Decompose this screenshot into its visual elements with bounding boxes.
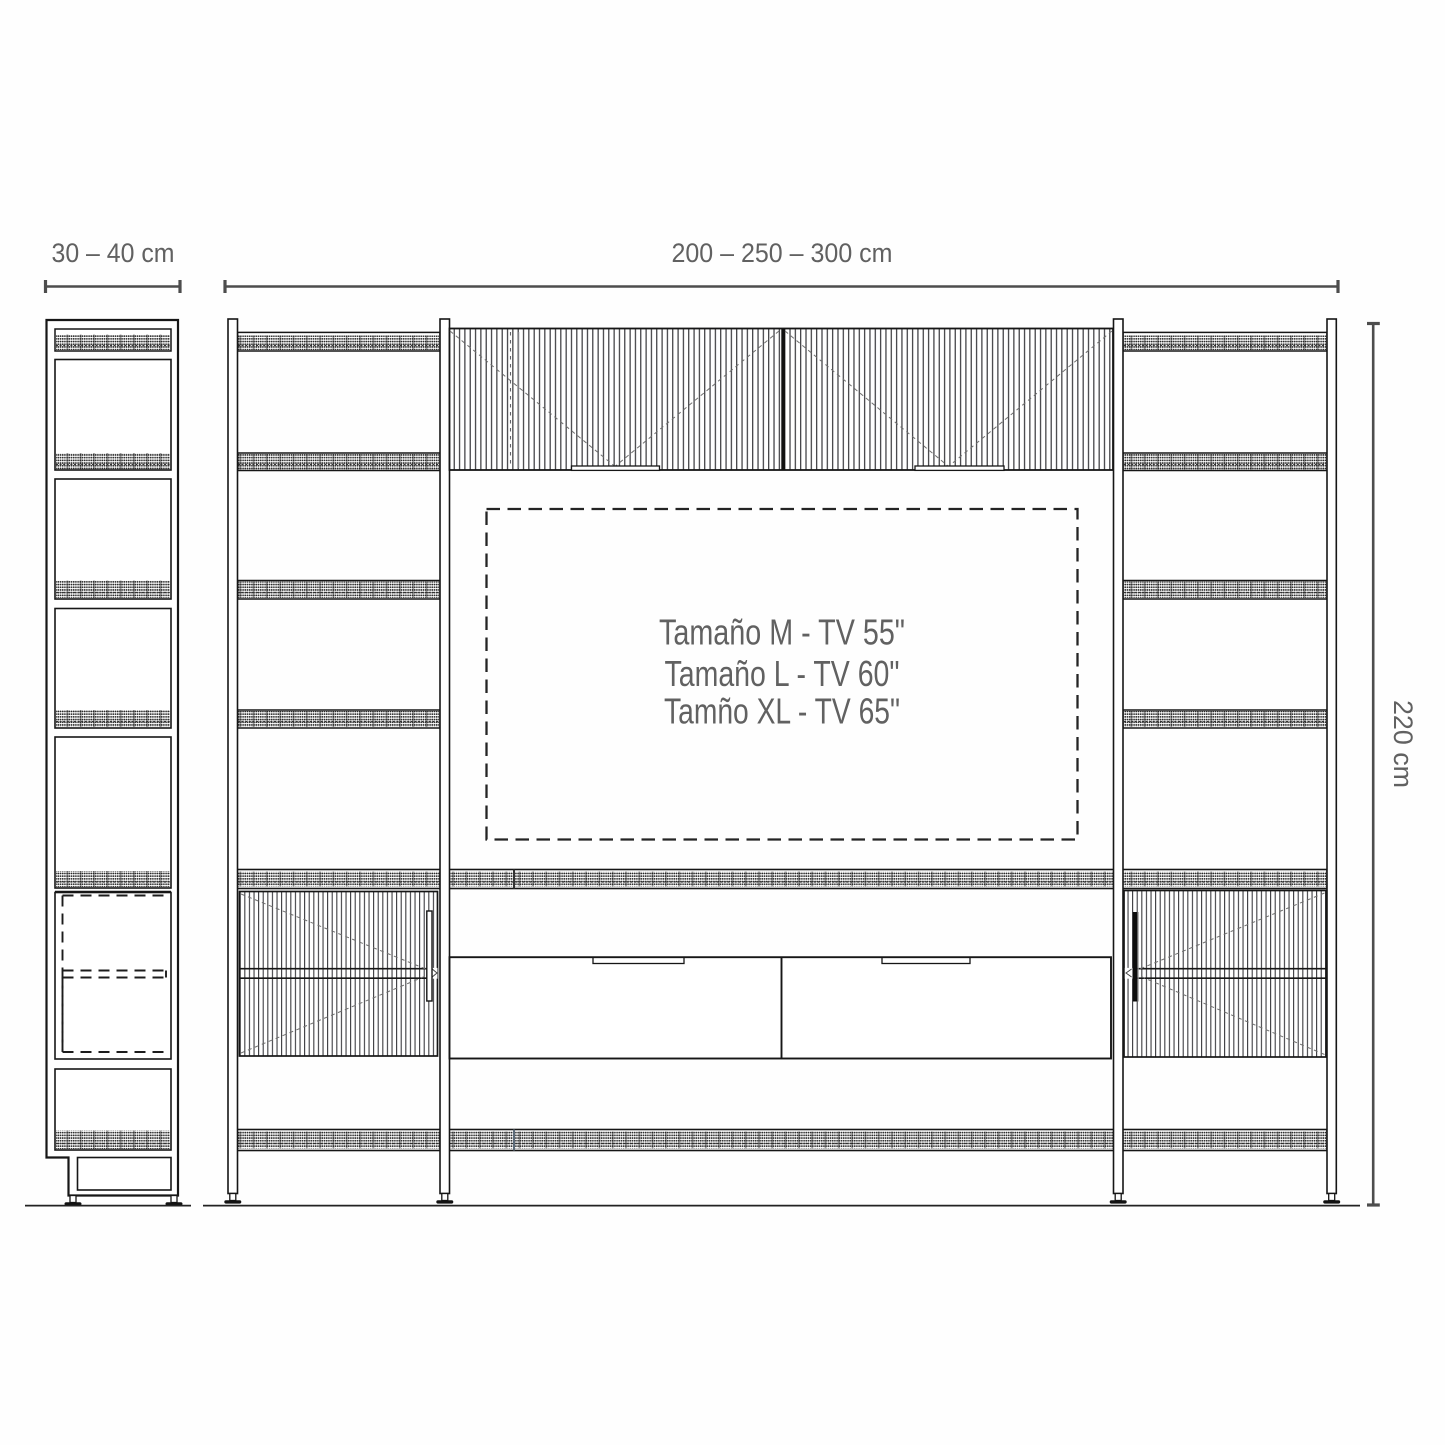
svg-text:200 – 250 – 300 cm: 200 – 250 – 300 cm [672, 238, 893, 268]
svg-text:Tamño XL - TV 65": Tamño XL - TV 65" [664, 691, 900, 732]
svg-text:Tamaño M - TV 55": Tamaño M - TV 55" [659, 612, 905, 653]
svg-text:220 cm: 220 cm [1388, 700, 1418, 788]
svg-text:Tamaño L - TV 60": Tamaño L - TV 60" [665, 653, 900, 694]
svg-text:30 – 40 cm: 30 – 40 cm [52, 238, 175, 268]
